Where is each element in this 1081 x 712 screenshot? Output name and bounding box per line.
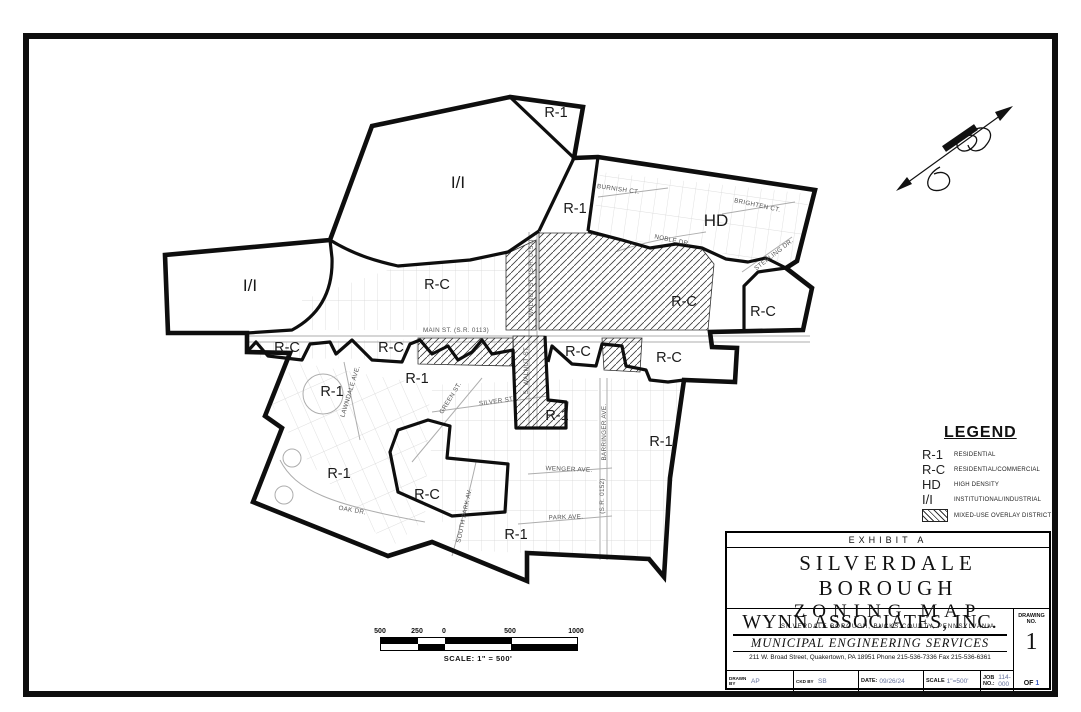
legend-desc: HIGH DENSITY bbox=[954, 479, 999, 491]
checked-by-value: SB bbox=[818, 678, 827, 685]
revision-strip: DRAWN BY AP CKD BY SB DATE: 09/26/24 SCA… bbox=[727, 670, 1013, 691]
drawing-no-value: 1 bbox=[1014, 629, 1049, 656]
scale-ticks: 500 250 0 500 1000 bbox=[373, 628, 583, 637]
job-cell: JOB NO.: 114-000 bbox=[981, 671, 1013, 691]
legend-desc: INSTITUTIONAL/INDUSTRIAL bbox=[954, 494, 1041, 506]
legend-code: R-C bbox=[922, 464, 954, 476]
firm-address: 211 W. Broad Street, Quakertown, PA 1895… bbox=[733, 654, 1007, 661]
checked-by-cell: CKD BY SB bbox=[794, 671, 859, 691]
zone-label: R-1 bbox=[327, 466, 350, 482]
street-label: PARK AVE. bbox=[549, 513, 584, 521]
hatch-swatch bbox=[922, 509, 948, 522]
sheet-of: OF 1 bbox=[1014, 680, 1049, 687]
zone-label: I/I bbox=[451, 173, 465, 192]
legend-code: I/I bbox=[922, 494, 954, 506]
firm-tagline: MUNICIPAL ENGINEERING SERVICES bbox=[733, 636, 1007, 652]
street-label: WALNUT ST. (S.R. 0152) bbox=[528, 239, 535, 317]
legend: LEGEND R-1 RESIDENTIAL R-C RESIDENTIAL/C… bbox=[922, 424, 1058, 525]
zone-label: R-C bbox=[274, 340, 300, 356]
zone-label: R-C bbox=[378, 340, 404, 356]
scale-bar: 500 250 0 500 1000 SCALE: 1" = 500' bbox=[373, 628, 583, 663]
zone-label: R-C bbox=[565, 344, 591, 360]
title-line1: SILVERDALE BOROUGH bbox=[727, 551, 1049, 601]
scale-tick: 500 bbox=[374, 628, 386, 635]
street-label: MAIN ST. (S.R. 0113) bbox=[423, 327, 489, 334]
drawing-number-box: DRAWING NO. 1 OF 1 bbox=[1014, 609, 1049, 691]
zone-label: R-1 bbox=[405, 371, 428, 387]
legend-heading: LEGEND bbox=[944, 424, 1058, 442]
drawn-by-cell: DRAWN BY AP bbox=[727, 671, 794, 691]
drawn-by-value: AP bbox=[751, 678, 760, 685]
legend-item: I/I INSTITUTIONAL/INDUSTRIAL bbox=[922, 494, 1058, 506]
legend-code: R-1 bbox=[922, 449, 954, 461]
map-title: SILVERDALE BOROUGH ZONING MAP SILVERDALE… bbox=[727, 551, 1049, 609]
firm-name: WYNN ASSOCIATES, INC. bbox=[733, 611, 1007, 636]
zone-label: R-1 bbox=[544, 105, 567, 121]
scale-tick: 250 bbox=[411, 628, 423, 635]
zone-label: R-C bbox=[424, 277, 450, 293]
scale-tick: 1000 bbox=[568, 628, 584, 635]
street-label: (S.R. 0152) bbox=[599, 478, 606, 514]
checked-by-label: CKD BY bbox=[796, 679, 816, 684]
legend-item-overlay: MIXED-USE OVERLAY DISTRICT bbox=[922, 509, 1058, 522]
zone-label: R-C bbox=[414, 487, 440, 503]
firm-block: WYNN ASSOCIATES, INC. MUNICIPAL ENGINEER… bbox=[727, 609, 1013, 670]
scale-tick: 500 bbox=[504, 628, 516, 635]
legend-item: R-C RESIDENTIAL/COMMERCIAL bbox=[922, 464, 1058, 476]
job-label: JOB NO.: bbox=[983, 675, 996, 687]
scale-cell: SCALE 1"=500' bbox=[924, 671, 981, 691]
north-arrow-icon bbox=[896, 106, 1013, 191]
zone-label: R-C bbox=[750, 304, 776, 320]
zone-label: HD bbox=[704, 211, 729, 230]
scale-tick: 0 bbox=[442, 628, 446, 635]
legend-desc: MIXED-USE OVERLAY DISTRICT bbox=[954, 510, 1051, 522]
title-block: EXHIBIT A SILVERDALE BOROUGH ZONING MAP … bbox=[725, 531, 1051, 690]
legend-item: R-1 RESIDENTIAL bbox=[922, 449, 1058, 461]
scale-bar-graphic bbox=[380, 637, 578, 651]
drawing-no-label: DRAWING NO. bbox=[1014, 613, 1049, 625]
street-label: BARRINGER AVE. bbox=[601, 404, 608, 461]
exhibit-label: EXHIBIT A bbox=[727, 533, 1049, 548]
date-value: 09/26/24 bbox=[879, 678, 904, 685]
drawing-sheet: R-1 I/I R-1 HD I/I R-C R-C R-C R-C R-C R… bbox=[0, 0, 1081, 712]
zone-label: R-C bbox=[671, 294, 697, 310]
zone-label: I/I bbox=[243, 276, 257, 295]
zone-label: R-1 bbox=[563, 201, 586, 217]
date-label: DATE: bbox=[861, 678, 877, 684]
legend-desc: RESIDENTIAL bbox=[954, 449, 996, 461]
job-value: 114-000 bbox=[998, 674, 1011, 688]
drawn-by-label: DRAWN BY bbox=[729, 676, 749, 686]
scale-value: 1"=500' bbox=[947, 678, 969, 685]
scale-label: SCALE bbox=[926, 678, 945, 684]
scale-caption: SCALE: 1" = 500' bbox=[373, 654, 583, 663]
zone-label: R-1 bbox=[545, 408, 568, 424]
zone-label: R-1 bbox=[504, 527, 527, 543]
zone-label: R-1 bbox=[649, 434, 672, 450]
zone-label: R-1 bbox=[320, 384, 343, 400]
zone-label: R-C bbox=[656, 350, 682, 366]
legend-code: HD bbox=[922, 479, 954, 491]
legend-item: HD HIGH DENSITY bbox=[922, 479, 1058, 491]
date-cell: DATE: 09/26/24 bbox=[859, 671, 924, 691]
legend-desc: RESIDENTIAL/COMMERCIAL bbox=[954, 464, 1040, 476]
street-label: S. WALNUT ST. bbox=[523, 346, 530, 395]
